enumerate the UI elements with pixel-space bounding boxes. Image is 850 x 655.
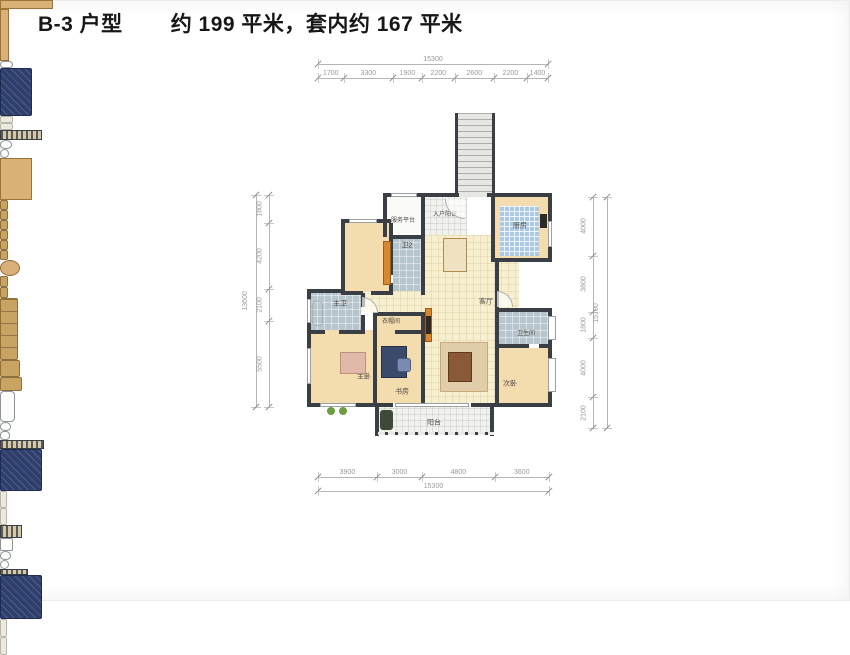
- dimension-label: 2200: [430, 70, 446, 77]
- bed3-bed: [0, 575, 42, 619]
- wall-segment: [421, 239, 425, 295]
- dimension-label: 4200: [257, 248, 264, 264]
- dining-table: [0, 158, 32, 200]
- dining-chair: [0, 230, 8, 240]
- wall-segment: [499, 344, 529, 348]
- bed-pillow: [0, 637, 7, 655]
- balcony-plant: [380, 410, 393, 430]
- dimension-label: 1900: [400, 70, 416, 77]
- room-bath3: [499, 312, 548, 344]
- dining-chair: [0, 220, 8, 230]
- stairwell: [455, 113, 495, 197]
- dining-table-inner: [443, 238, 467, 272]
- label-balcony: 阳台: [427, 420, 441, 427]
- dimension-label: 3800: [581, 276, 588, 292]
- window: [307, 299, 311, 323]
- tv: [426, 316, 431, 334]
- dimension-label: 1700: [323, 70, 339, 77]
- bed-pillow: [0, 508, 7, 525]
- label-master: 主卧: [357, 374, 371, 381]
- table-chair: [0, 287, 8, 298]
- label-master-bath: 主卫: [333, 301, 347, 308]
- mbath-toilet: [0, 422, 11, 431]
- dimension-label: 3300: [361, 70, 377, 77]
- balcony-rail: [375, 432, 494, 435]
- wall-segment: [495, 308, 552, 312]
- kitchen-sink: [0, 61, 13, 68]
- armchair: [0, 360, 20, 377]
- table-chair: [0, 276, 8, 287]
- bath3-sink: [0, 560, 9, 569]
- mbath-sink: [0, 431, 10, 440]
- dimension-label: 2100: [581, 405, 588, 421]
- label-bath3: 卫生间: [517, 331, 535, 337]
- dimension-line: [269, 195, 270, 407]
- armchair: [0, 377, 22, 391]
- bath2-toilet: [0, 140, 12, 149]
- wall-segment: [491, 193, 495, 262]
- bed2-wardrobe: [0, 130, 42, 140]
- dimension-label: 2100: [257, 297, 264, 313]
- dimension-label: 15300: [423, 56, 442, 63]
- sofa-chaise: [0, 298, 18, 360]
- label-bedroom3: 次卧: [503, 381, 517, 388]
- bathtub-inner: [312, 301, 323, 326]
- label-service-platform: 服务平台: [391, 218, 415, 224]
- coffee-table: [448, 352, 472, 382]
- wall-segment: [341, 219, 345, 295]
- dining-chair: [0, 210, 8, 220]
- bathtub: [0, 391, 15, 422]
- dimension-label: 1800: [581, 317, 588, 333]
- wall-segment: [373, 312, 377, 407]
- bath2-sink: [0, 149, 9, 158]
- floor-plan: 服务平台 入户阳台 厨房 卫2 餐厅 客厅 主卫 衣帽间 主卧 书房 卫生间 次…: [0, 0, 850, 601]
- wall-segment: [539, 344, 548, 348]
- window: [395, 403, 469, 407]
- master-rug: [340, 352, 366, 374]
- wall-segment: [491, 258, 552, 262]
- bath3-toilet: [0, 551, 11, 560]
- wall-segment: [373, 312, 425, 316]
- dining-chair: [0, 240, 8, 250]
- wall-segment: [339, 330, 365, 334]
- dimension-label: 3600: [514, 469, 530, 476]
- window: [548, 221, 552, 247]
- wall-segment: [307, 289, 345, 293]
- bed-pillow: [0, 123, 13, 130]
- window: [548, 316, 556, 340]
- wall-segment: [490, 403, 552, 407]
- kitchen-counter: [0, 0, 53, 9]
- kitchen-stove: [540, 214, 547, 228]
- master-bed: [0, 449, 42, 491]
- desk-chair: [397, 358, 411, 372]
- dimension-label: 4000: [581, 219, 588, 235]
- dimension-label: 15300: [424, 483, 443, 490]
- wall-segment: [395, 330, 421, 334]
- dimension-line: [318, 491, 549, 492]
- tall-cabinet: [383, 241, 391, 285]
- dimension-line: [607, 197, 608, 428]
- kitchen-counter: [0, 9, 9, 61]
- kitchen-tile: [500, 206, 539, 256]
- dimension-label: 13600: [242, 291, 249, 310]
- wall-segment: [421, 197, 425, 237]
- dimension-label: 2600: [467, 70, 483, 77]
- wall-segment: [371, 291, 393, 295]
- label-bath2: 卫2: [402, 243, 413, 250]
- wall-segment: [495, 308, 499, 407]
- round-table: [0, 260, 20, 276]
- dimension-label: 3900: [340, 469, 356, 476]
- wall-segment: [487, 193, 552, 197]
- master-dresser: [0, 440, 44, 449]
- bed-pillow: [0, 116, 13, 123]
- washing-machine: [0, 538, 13, 551]
- label-study: 书房: [395, 389, 409, 396]
- dimension-label: 1400: [530, 70, 546, 77]
- window: [320, 403, 356, 407]
- bed-pillow: [0, 491, 7, 508]
- cloak-cabinet: [0, 525, 22, 538]
- dimension-label: 3000: [392, 469, 408, 476]
- dining-chair: [0, 250, 8, 260]
- label-kitchen: 厨房: [513, 223, 527, 230]
- dimension-label: 2200: [503, 70, 519, 77]
- wall-segment: [389, 235, 425, 239]
- window: [548, 358, 556, 392]
- dimension-line: [318, 477, 549, 478]
- label-living: 客厅: [479, 299, 493, 306]
- room-bedroom3: [499, 348, 548, 403]
- dimension-label: 15700: [593, 303, 600, 322]
- label-cloak: 衣帽间: [382, 319, 400, 325]
- dining-chair: [0, 200, 8, 210]
- window: [307, 348, 311, 384]
- dimension-label: 1800: [257, 201, 264, 217]
- plant: [339, 407, 347, 415]
- wall-segment: [383, 193, 387, 237]
- dimension-label: 5500: [257, 356, 264, 372]
- bed-pillow: [0, 619, 7, 637]
- dimension-line: [318, 64, 548, 65]
- dimension-label: 4000: [581, 360, 588, 376]
- plant: [327, 407, 335, 415]
- bed2-bed: [0, 68, 32, 116]
- dimension-line: [318, 78, 548, 79]
- window: [391, 193, 417, 197]
- wall-segment: [307, 330, 325, 334]
- dimension-label: 4800: [451, 469, 467, 476]
- window: [349, 219, 377, 223]
